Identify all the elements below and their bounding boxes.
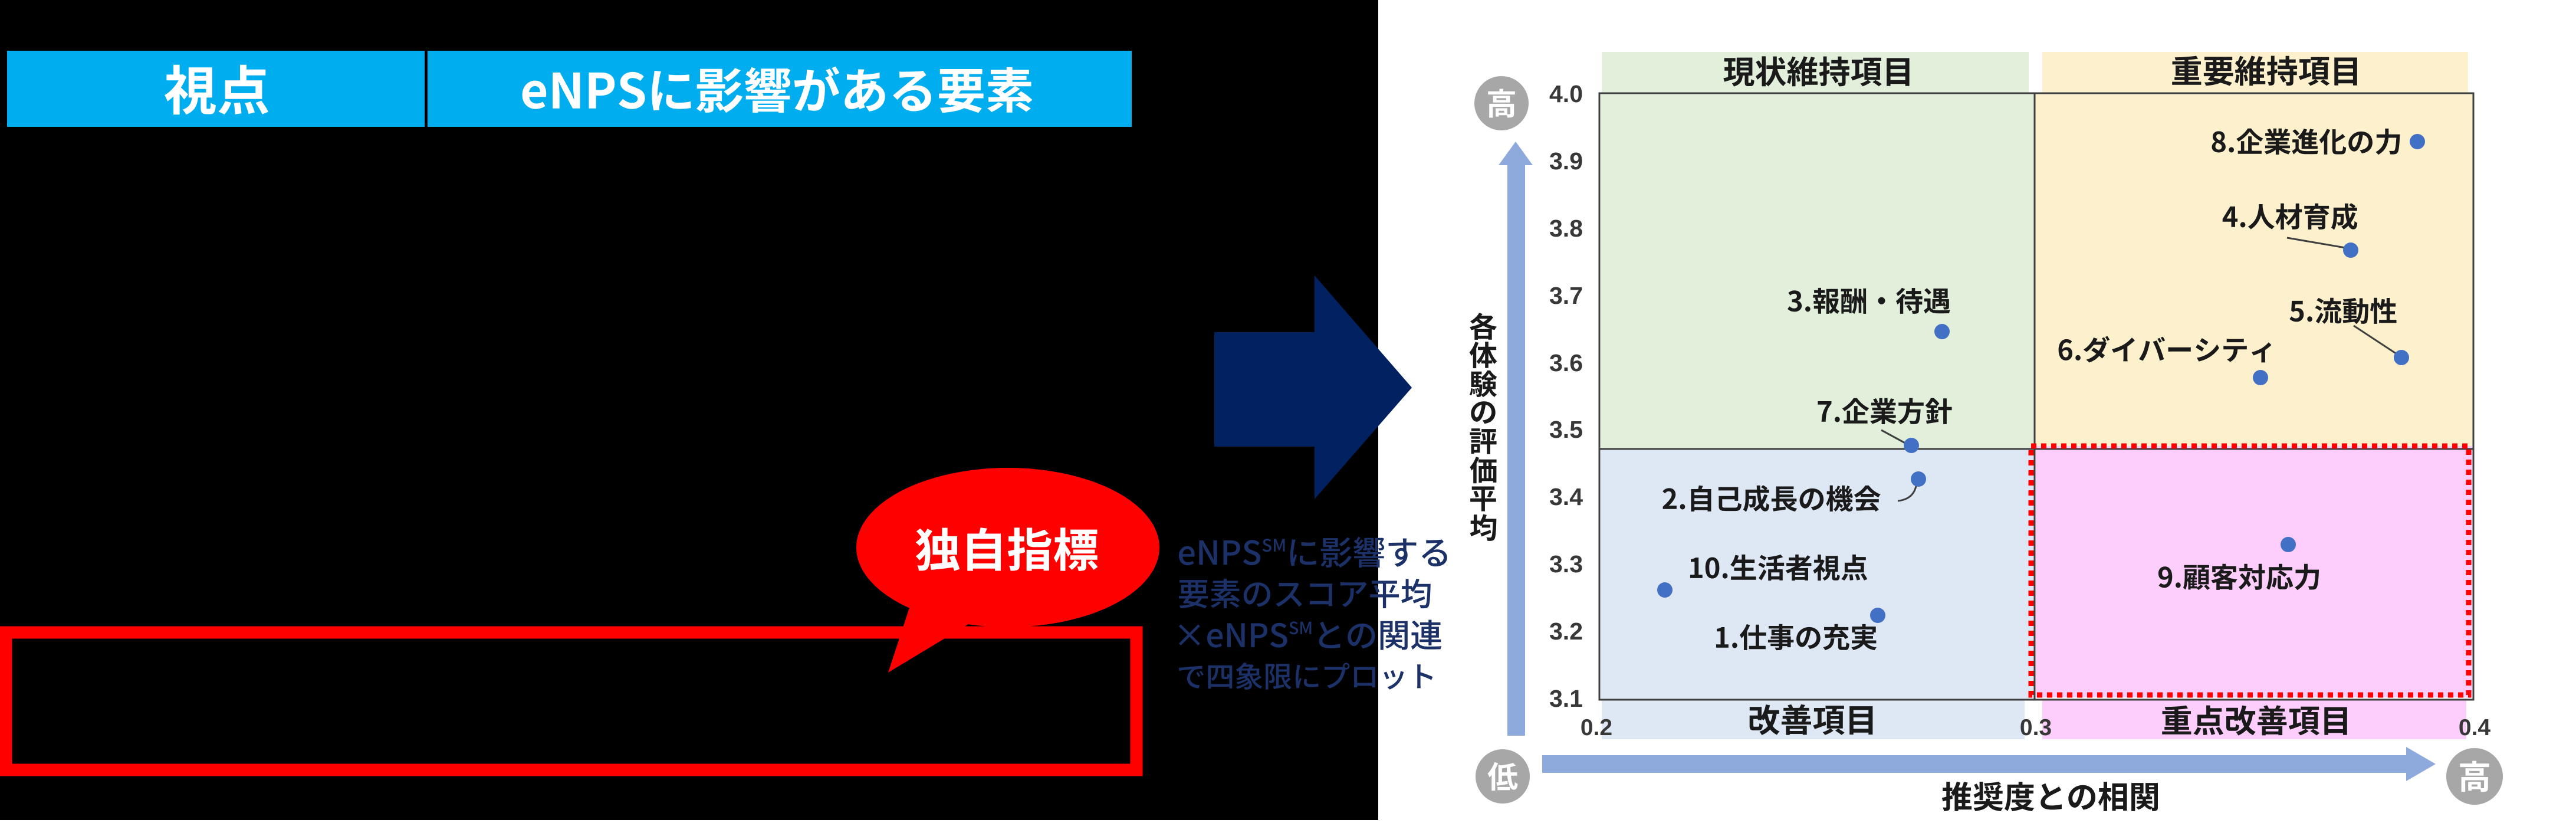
svg-text:3.2: 3.2 [1549,618,1583,645]
svg-text:0.4: 0.4 [2459,715,2491,740]
svg-text:3.6: 3.6 [1549,349,1583,376]
svg-text:3.1: 3.1 [1549,685,1583,712]
svg-text:3.9: 3.9 [1549,147,1583,175]
svg-text:3.8: 3.8 [1549,215,1583,242]
svg-text:3.4: 3.4 [1549,483,1583,510]
svg-text:0.2: 0.2 [1581,715,1612,740]
svg-text:3.5: 3.5 [1549,416,1583,443]
svg-text:3.3: 3.3 [1549,550,1583,578]
svg-text:3.7: 3.7 [1549,282,1583,309]
svg-text:0.3: 0.3 [2020,715,2052,740]
svg-text:4.0: 4.0 [1549,80,1583,107]
